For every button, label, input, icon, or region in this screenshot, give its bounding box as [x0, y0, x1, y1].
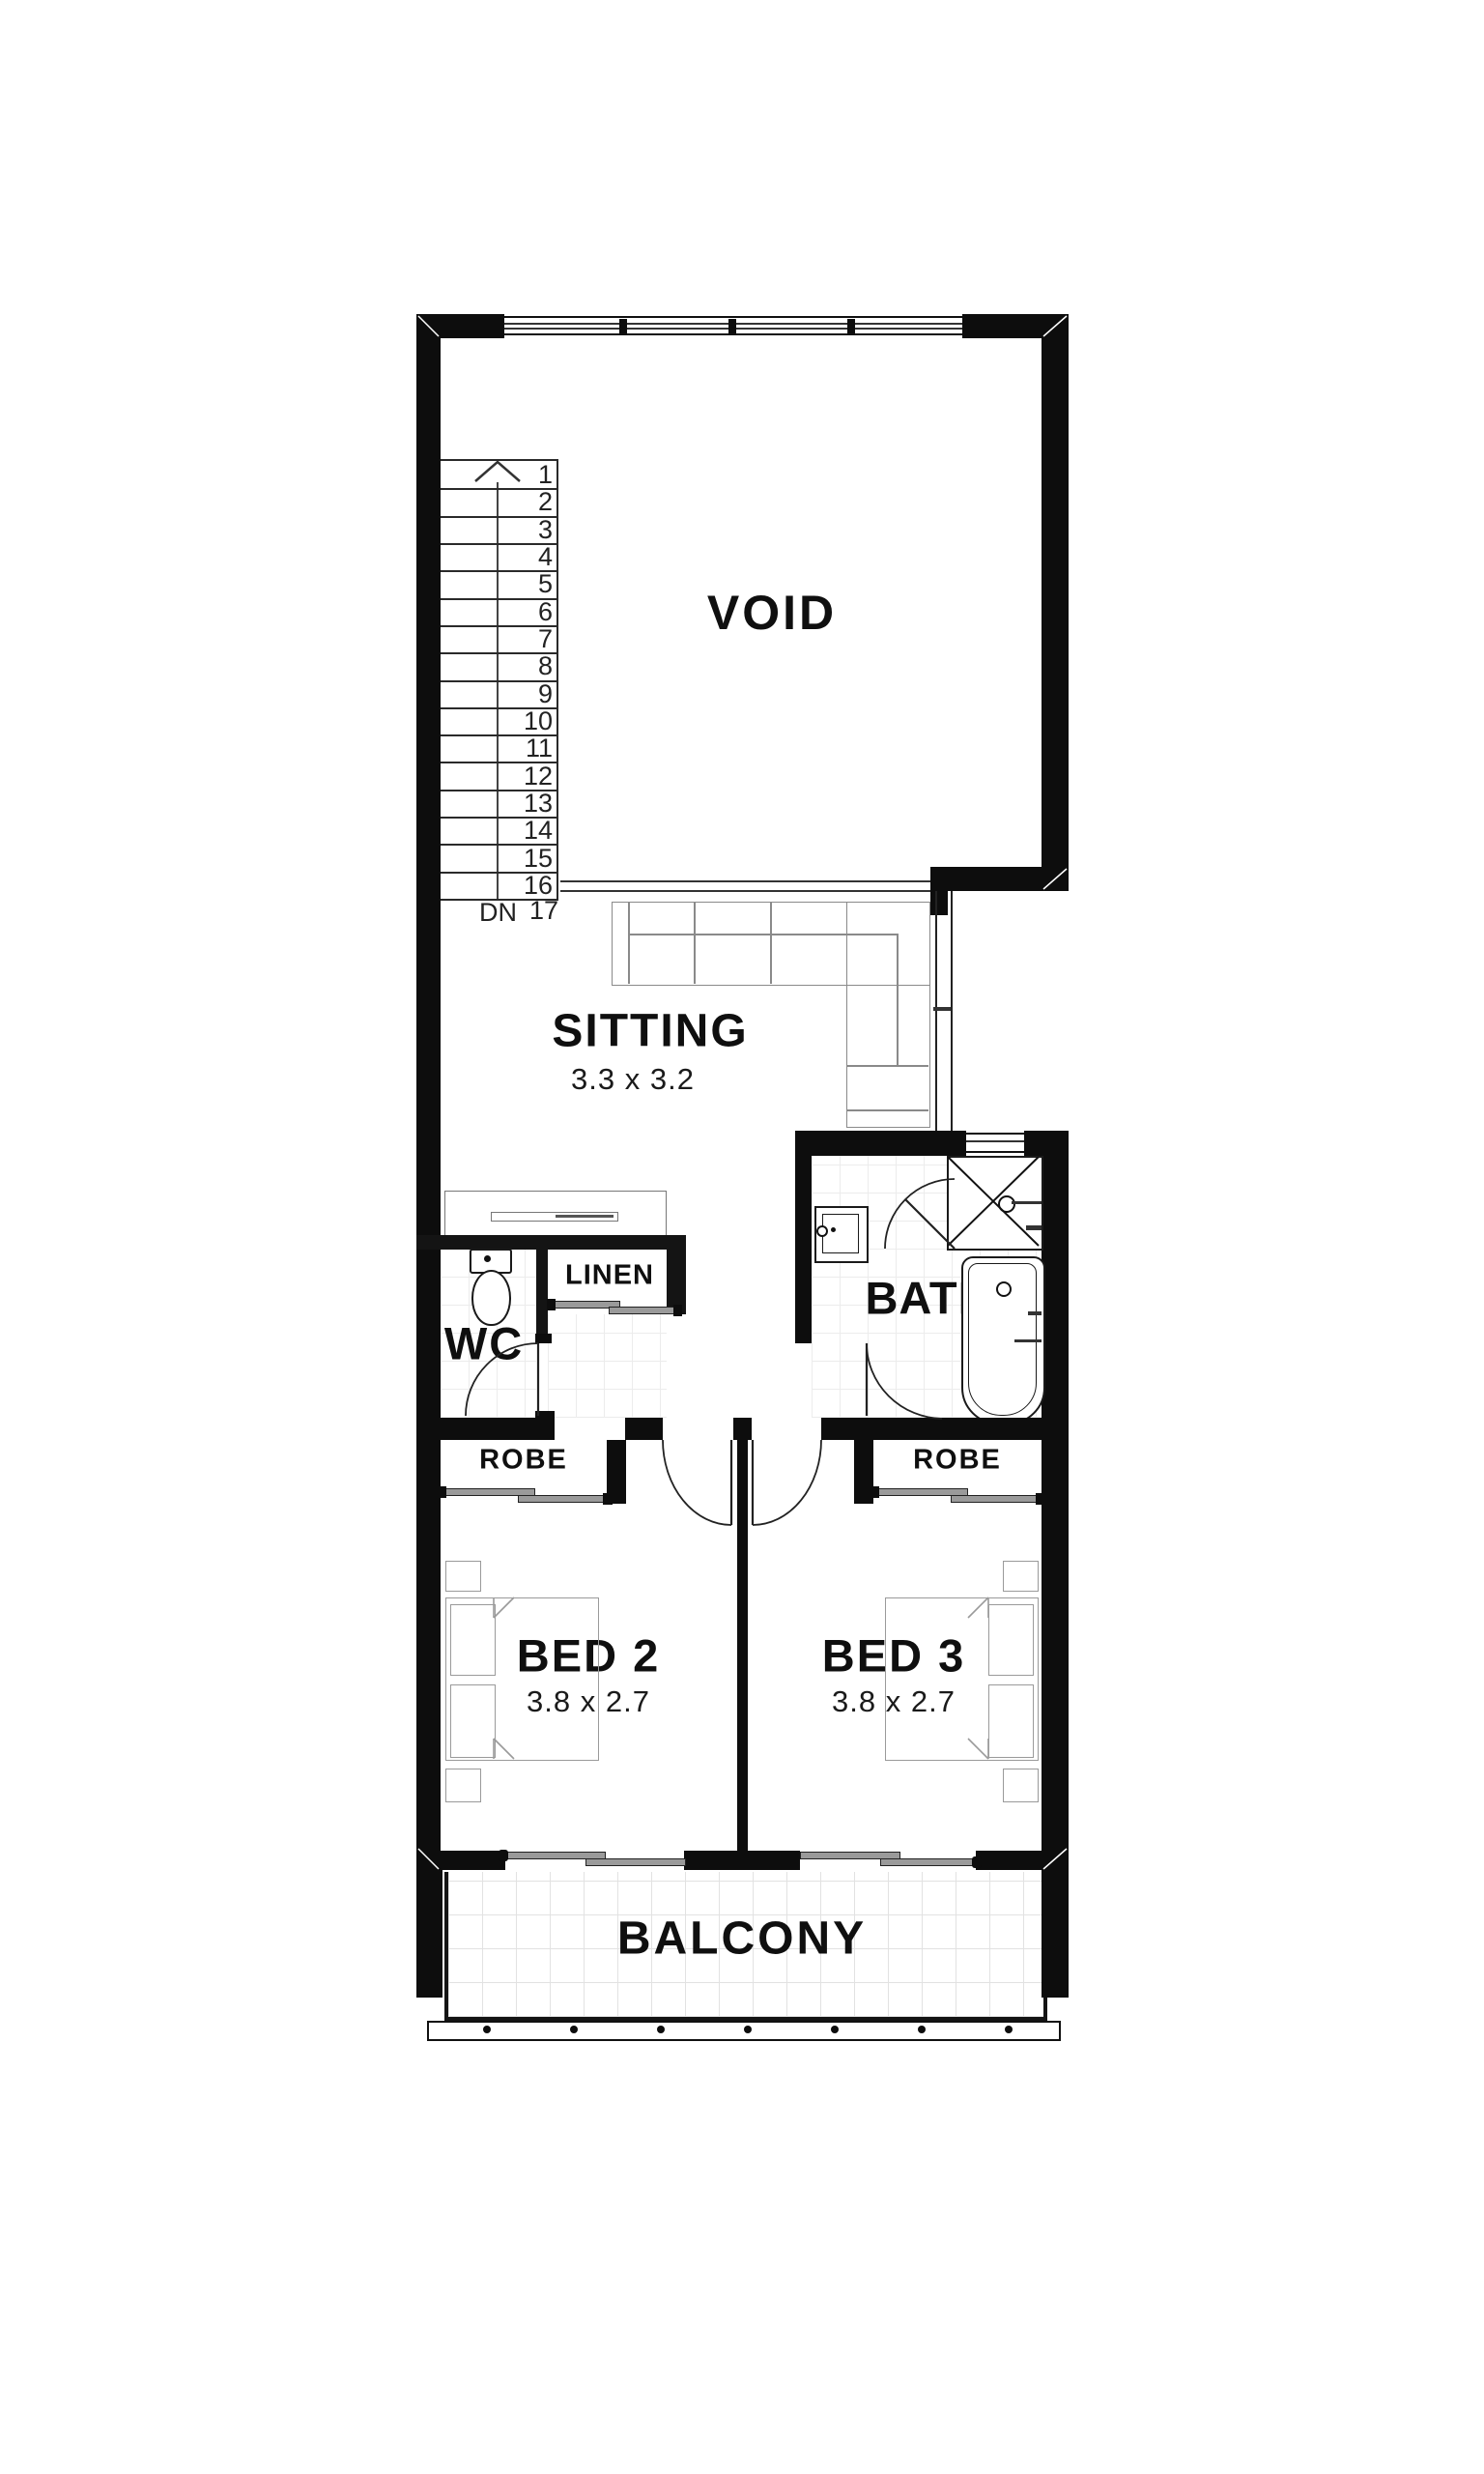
plan-linework	[0, 0, 1484, 2474]
floor-plan: 12345678910111213141516 DN 17 SITTING 3.…	[0, 0, 1484, 2474]
